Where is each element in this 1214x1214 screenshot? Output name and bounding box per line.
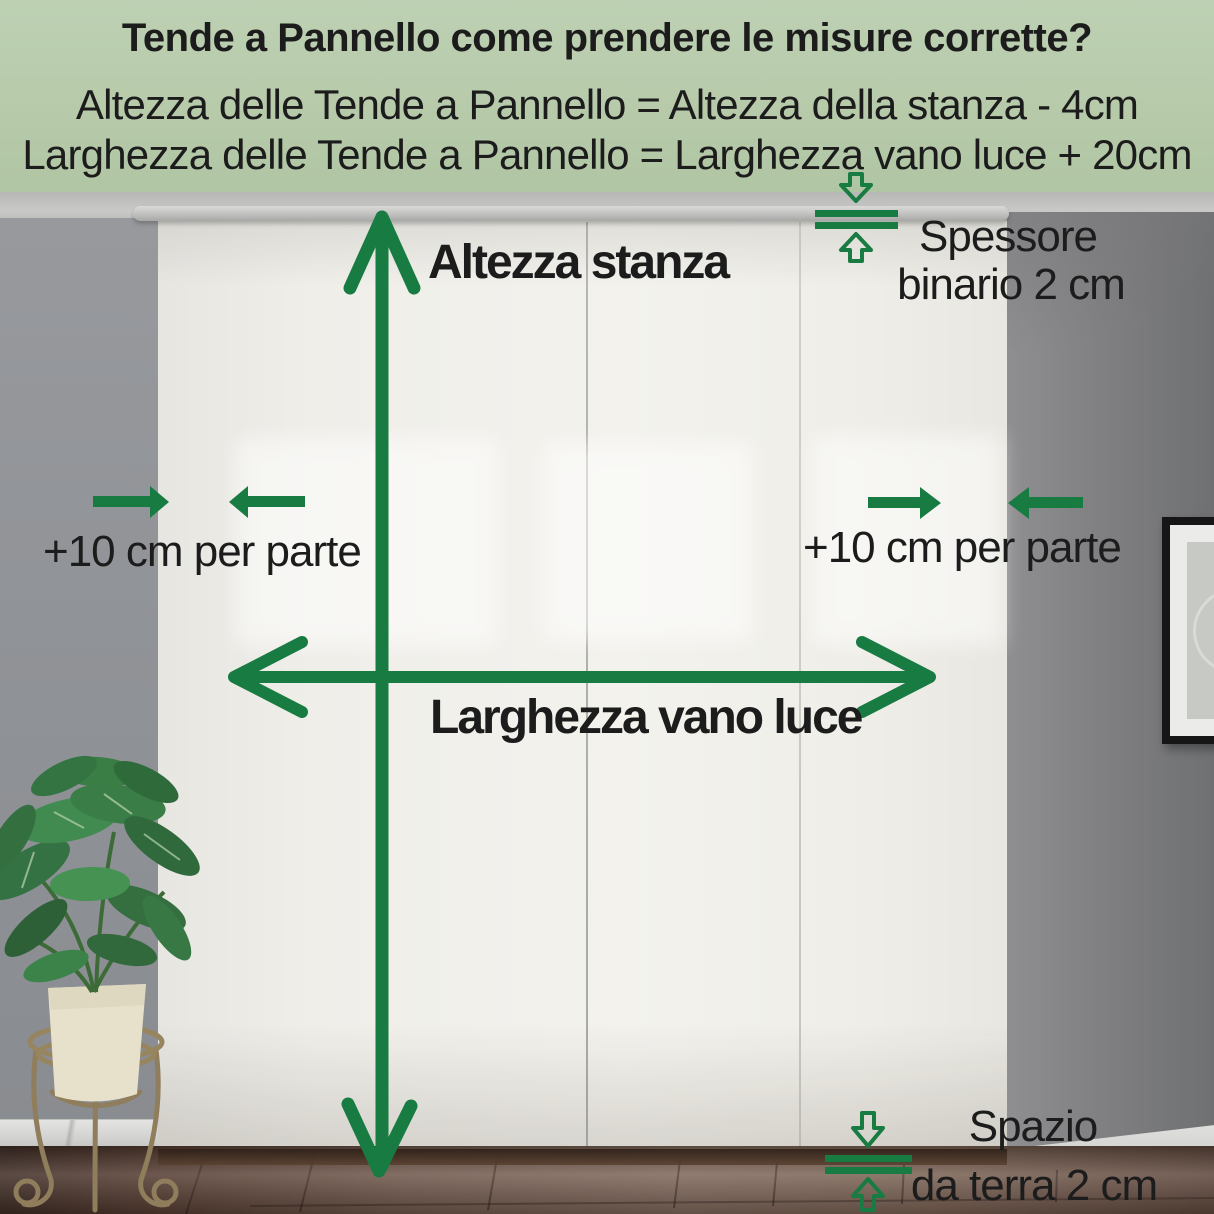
curtain-rail xyxy=(133,206,1009,221)
room-height-label: Altezza stanza xyxy=(428,235,728,290)
rail-thickness-label-line1: Spessore xyxy=(919,212,1097,262)
floor-clearance-label-line2: da terra 2 cm xyxy=(911,1161,1157,1211)
width-formula-text: Larghezza delle Tende a Pannello = Largh… xyxy=(0,131,1214,179)
curtain-panel-seam xyxy=(586,222,588,1150)
frame-artwork xyxy=(1187,542,1214,719)
curtain-panel-seam xyxy=(799,222,801,1150)
plant-leaves xyxy=(0,748,200,989)
page-title: Tende a Pannello come prendere le misure… xyxy=(0,16,1214,61)
opening-width-label: Larghezza vano luce xyxy=(430,690,861,745)
curtain-light-reflection xyxy=(543,443,753,641)
header-band: Tende a Pannello come prendere le misure… xyxy=(0,0,1214,192)
curtain-floor-shadow xyxy=(158,1149,1007,1165)
panel-curtains xyxy=(158,219,1007,1154)
left-allowance-label: +10 cm per parte xyxy=(43,527,361,577)
picture-frame xyxy=(1162,517,1214,744)
height-formula-text: Altezza delle Tende a Pannello = Altezza… xyxy=(0,81,1214,129)
artwork-circle-motif xyxy=(1193,588,1214,674)
frame-mat xyxy=(1170,525,1214,736)
rail-thickness-label-line2: binario 2 cm xyxy=(897,260,1125,310)
floor-clearance-label-line1: Spazio xyxy=(969,1102,1098,1152)
right-allowance-label: +10 cm per parte xyxy=(803,523,1121,573)
potted-plant xyxy=(0,742,200,1214)
infographic-page: { "header": { "title": "Tende a Pannello… xyxy=(0,0,1214,1214)
